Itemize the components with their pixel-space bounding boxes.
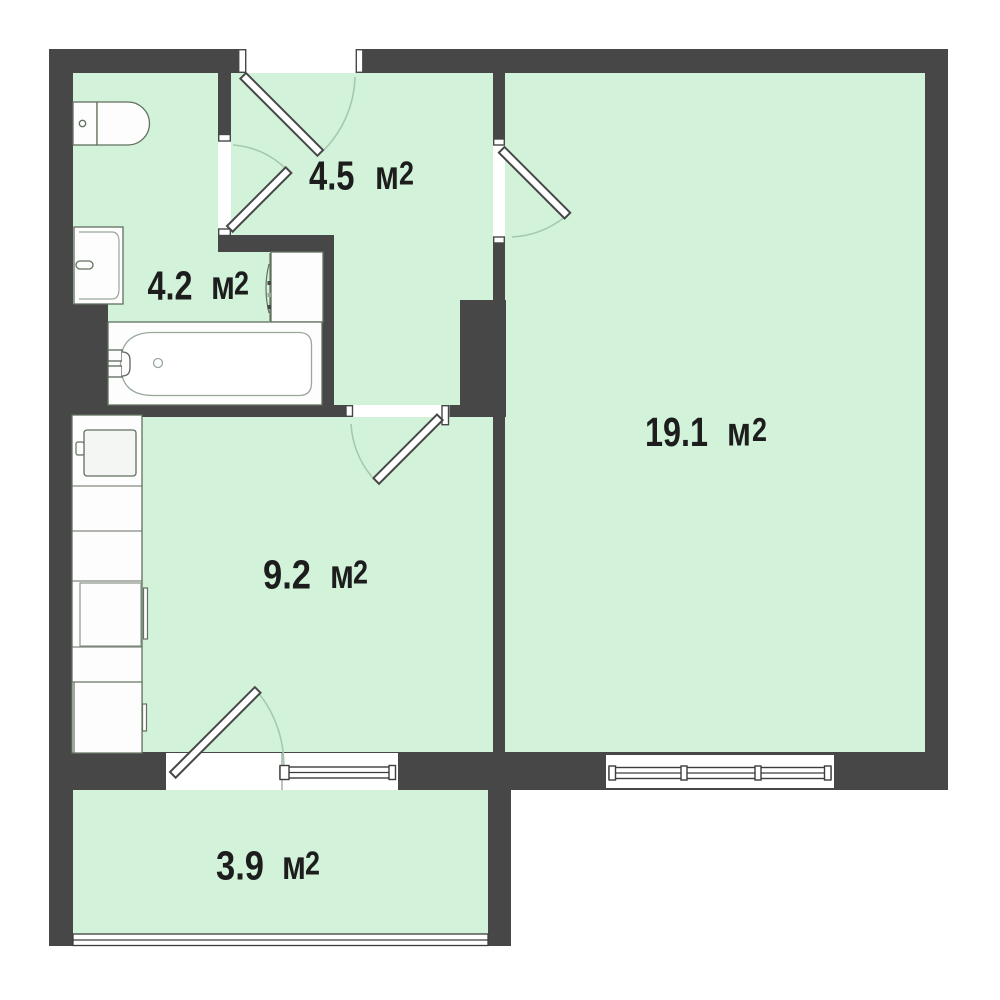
- svg-text:19.1: 19.1: [645, 409, 708, 455]
- svg-text:9.2: 9.2: [263, 552, 311, 598]
- svg-text:3.9: 3.9: [216, 843, 264, 889]
- svg-text:2: 2: [399, 155, 414, 192]
- svg-text:м: м: [727, 409, 751, 455]
- svg-text:2: 2: [752, 411, 767, 448]
- svg-text:2: 2: [234, 265, 249, 302]
- svg-text:2: 2: [353, 554, 368, 591]
- svg-text:4.5: 4.5: [309, 153, 355, 199]
- svg-text:м: м: [282, 842, 306, 888]
- svg-text:м: м: [211, 262, 235, 308]
- svg-text:4.2: 4.2: [148, 263, 193, 309]
- svg-text:м: м: [330, 551, 354, 597]
- svg-text:м: м: [375, 152, 399, 198]
- svg-text:2: 2: [305, 845, 320, 882]
